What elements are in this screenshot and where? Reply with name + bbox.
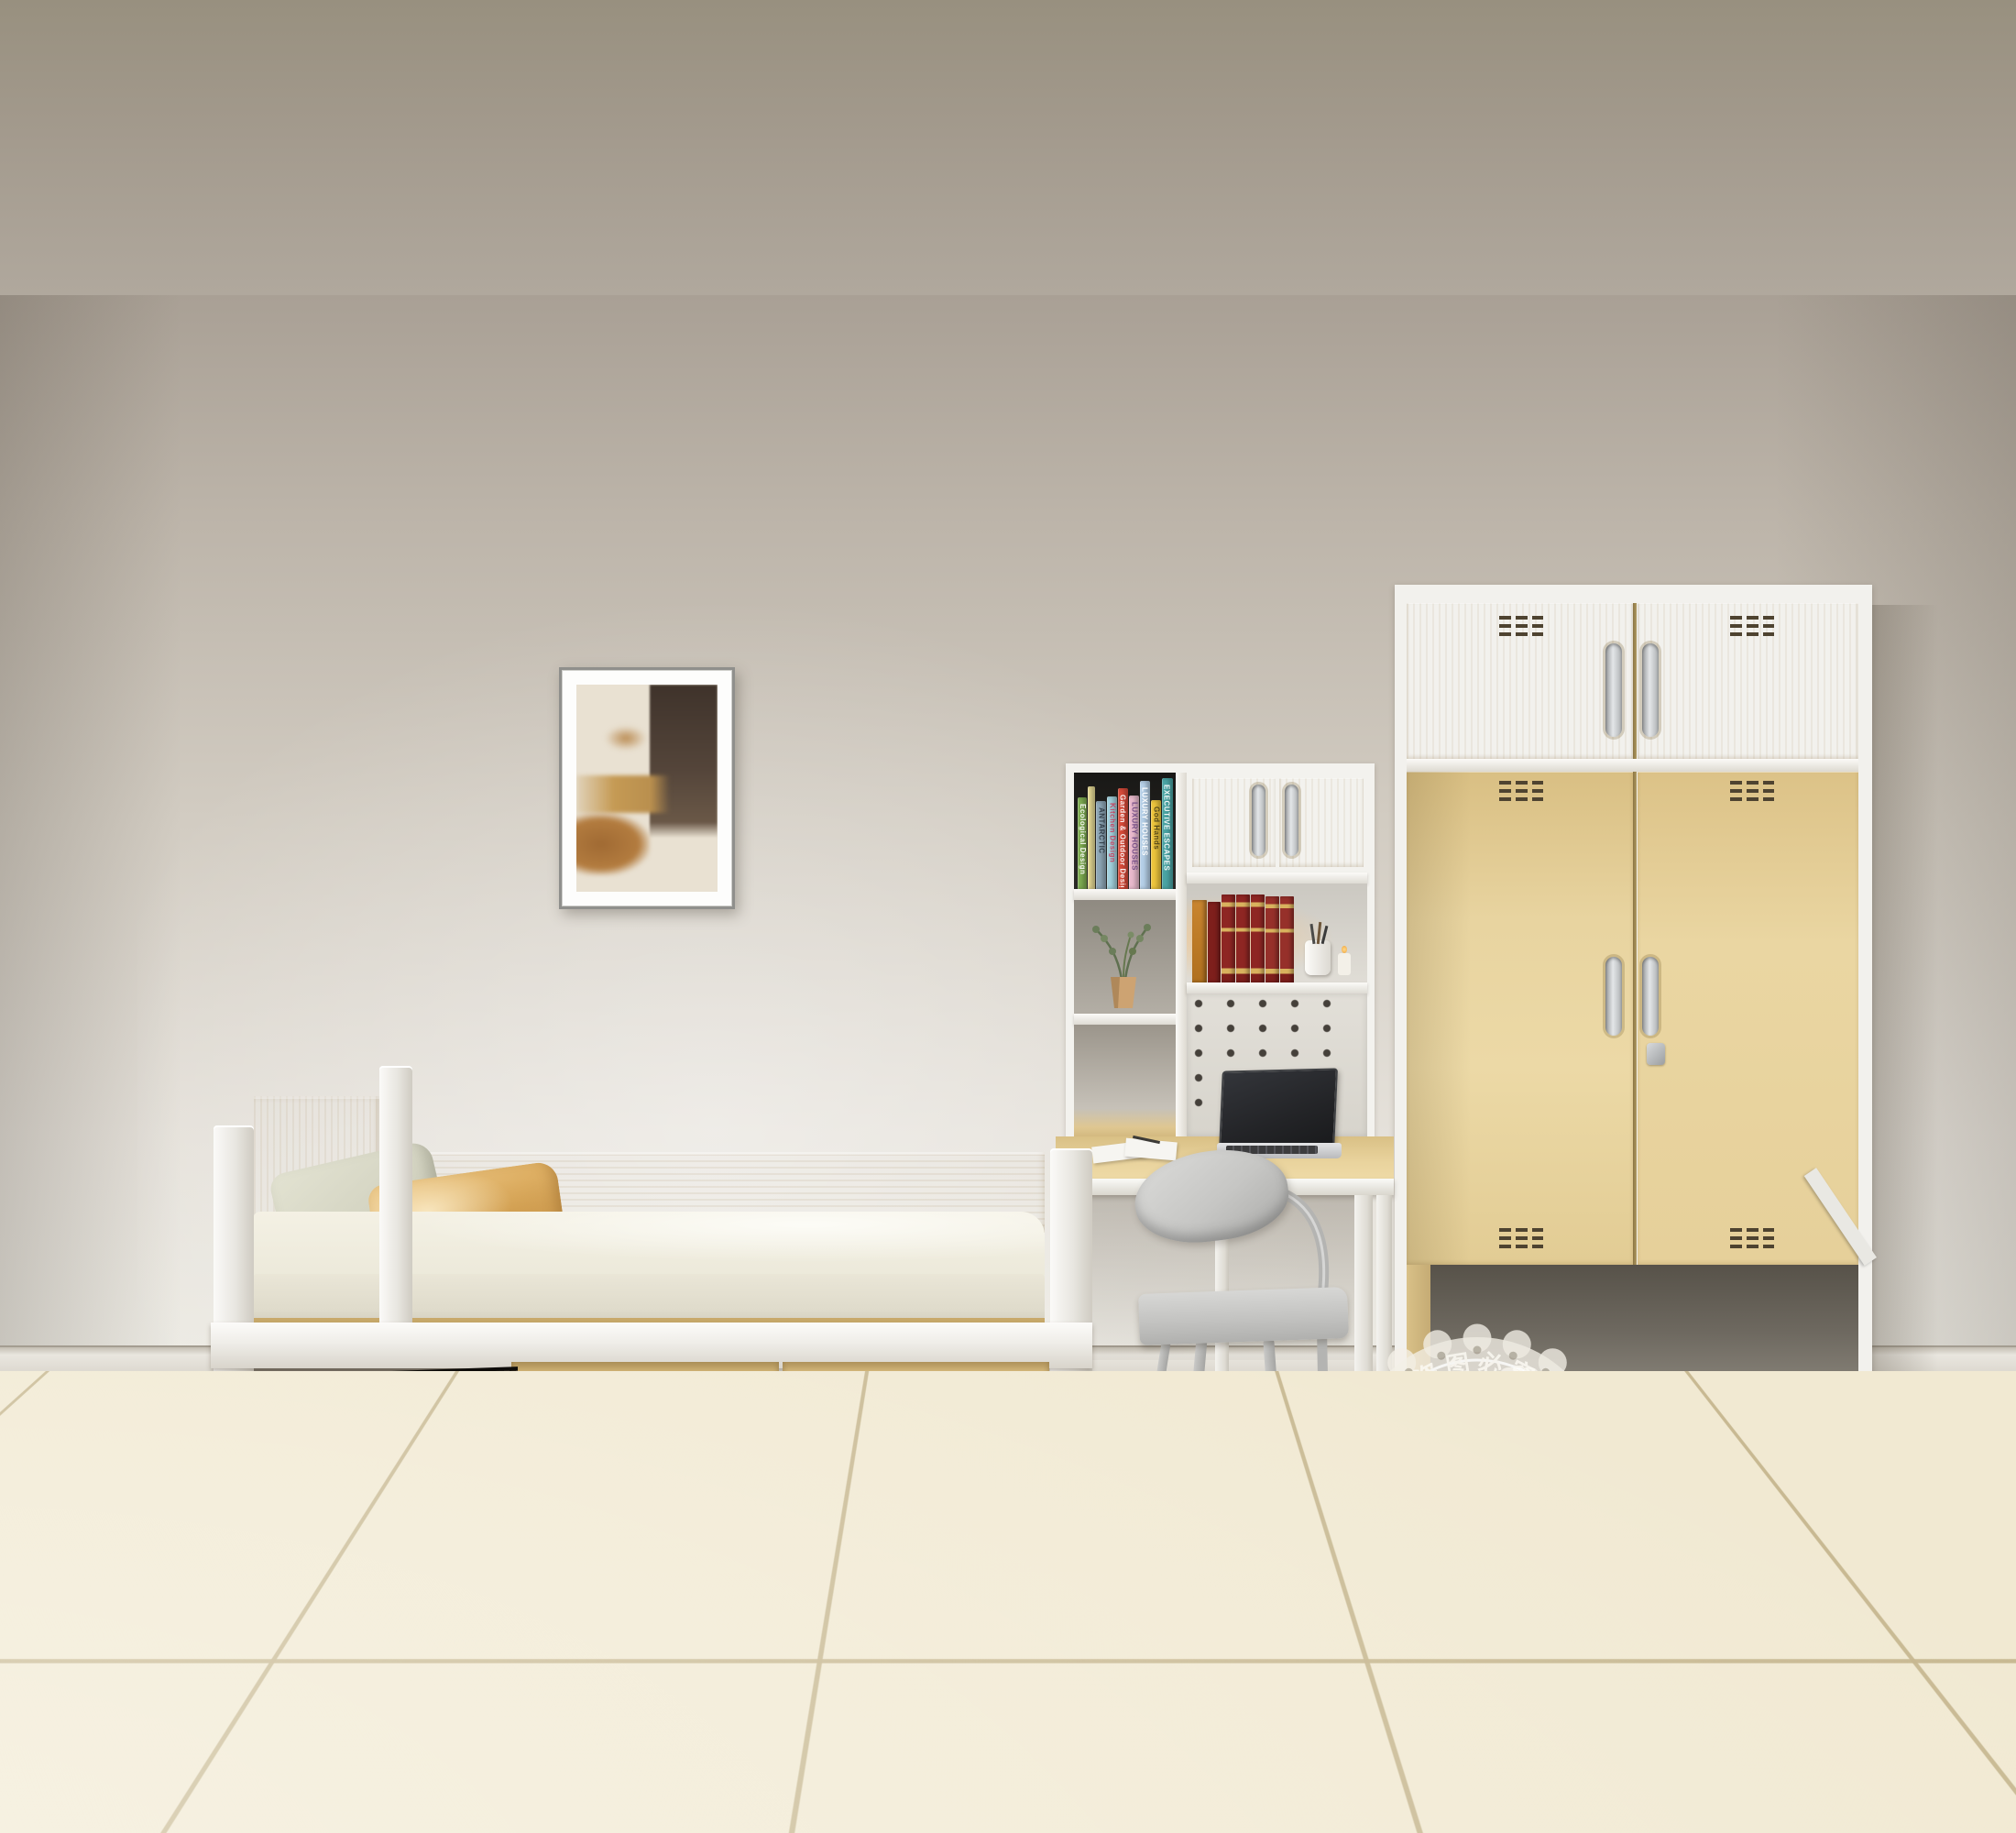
book-spine [1192,900,1207,982]
painting-tan-smear [605,726,647,751]
hutch-shelf [1074,1014,1176,1025]
wardrobe-door-gap [1633,772,1637,1265]
trundle-caster [409,1600,433,1615]
stamp-brand-line2: 版权所有 [1400,1467,1554,1506]
hutch-shelf [1187,873,1367,884]
vent-grille [1730,1228,1774,1248]
painting-brown-blob [576,813,650,875]
bed-post-head-right [379,1066,412,1341]
stamp-brand-line1: 艾尚家具 [1400,1427,1554,1465]
stamp-stars-bottom: ★ ★ ★ [1430,1512,1523,1535]
wardrobe-divider [1407,759,1858,772]
book-spine [1236,895,1250,982]
book-spine [1222,895,1235,982]
hutch-cubby-books: Ecological Design ANTARCTIC Kitchen Desi… [1074,773,1176,889]
pen-cup [1305,940,1331,975]
wardrobe-top-handle-right [1642,643,1659,737]
candle-flame [1342,946,1347,953]
desk-leg-shadow [1063,1490,1136,1505]
chair-seat [1138,1287,1349,1345]
hutch-cabinet-handle-right [1285,785,1298,856]
book-spine: Garden & Outdoor Design [1118,788,1129,889]
vent-grille [1499,616,1543,636]
wardrobe-handle-right [1642,957,1659,1036]
vent-grille [1730,616,1774,636]
trundle-caster [203,1606,227,1620]
mattress-top [253,1212,1045,1278]
book-spine [1280,896,1294,982]
wardrobe-handle-left [1605,957,1622,1036]
wardrobe-top-handle-left [1605,643,1622,737]
wardrobe-lock [1647,1043,1665,1065]
wardrobe-top-door-gap [1633,603,1637,759]
vent-grille [1499,1228,1543,1248]
book-spine [1208,902,1221,982]
bed-post-head-left [214,1125,254,1414]
framed-abstract-painting [559,667,735,909]
trundle-panel-edge [440,1421,453,1595]
potted-plant [1074,900,1176,1014]
ceiling [0,0,2016,298]
hutch-cubby-plant [1074,900,1176,1014]
book-spine: God Hands [1151,800,1160,889]
hutch-shelf-books [1187,884,1367,982]
bed-drawer-left [511,1362,779,1516]
candle [1338,953,1351,975]
hutch-divider [1176,773,1187,1136]
book-spine: LUXURY HOUSES [1140,781,1151,889]
book-spine [1088,786,1095,889]
vent-grille [1499,781,1543,801]
book-spine: EXECUTIVE ESCAPES [1162,778,1173,889]
vent-grille [1730,781,1774,801]
book-spine [1265,896,1279,982]
book-spine [1251,895,1265,982]
painting-artwork [576,685,718,892]
hutch-cubby-empty [1074,1025,1176,1136]
room-scene: Ecological Design ANTARCTIC Kitchen Desi… [0,0,2016,1833]
painting-ochre-band [576,775,670,813]
painting-dark-block [650,685,718,838]
hutch-shelf [1074,889,1176,900]
book-spine: Kitchen Design [1107,796,1116,889]
hutch-shelf [1187,982,1367,993]
copyright-watermark-stamp: 盗图必究 盗图必究 实物拍摄 实物拍摄 ★ ★ ★ ★ ★ ★ ★ ★ ★ ★ … [1321,1311,1633,1622]
bed-drawer-right [783,1362,1049,1516]
drawer-shadow [513,1507,1045,1529]
book-spine: Ecological Design [1078,797,1087,889]
book-row: Ecological Design ANTARCTIC Kitchen Desi… [1078,773,1174,889]
hutch-cabinet-handle-left [1252,785,1265,856]
trundle-front-panel [171,1416,451,1630]
laptop-screen [1219,1068,1338,1151]
wardrobe-door-shadow [1407,772,1471,1265]
book-spine: ANTARCTIC [1096,801,1106,889]
wardrobe-wall-shadow [1872,605,1938,1531]
book-spine: LUXURY HOUSES [1129,796,1138,889]
stamp-stars-top: ★ ★ ★ [1430,1404,1523,1427]
